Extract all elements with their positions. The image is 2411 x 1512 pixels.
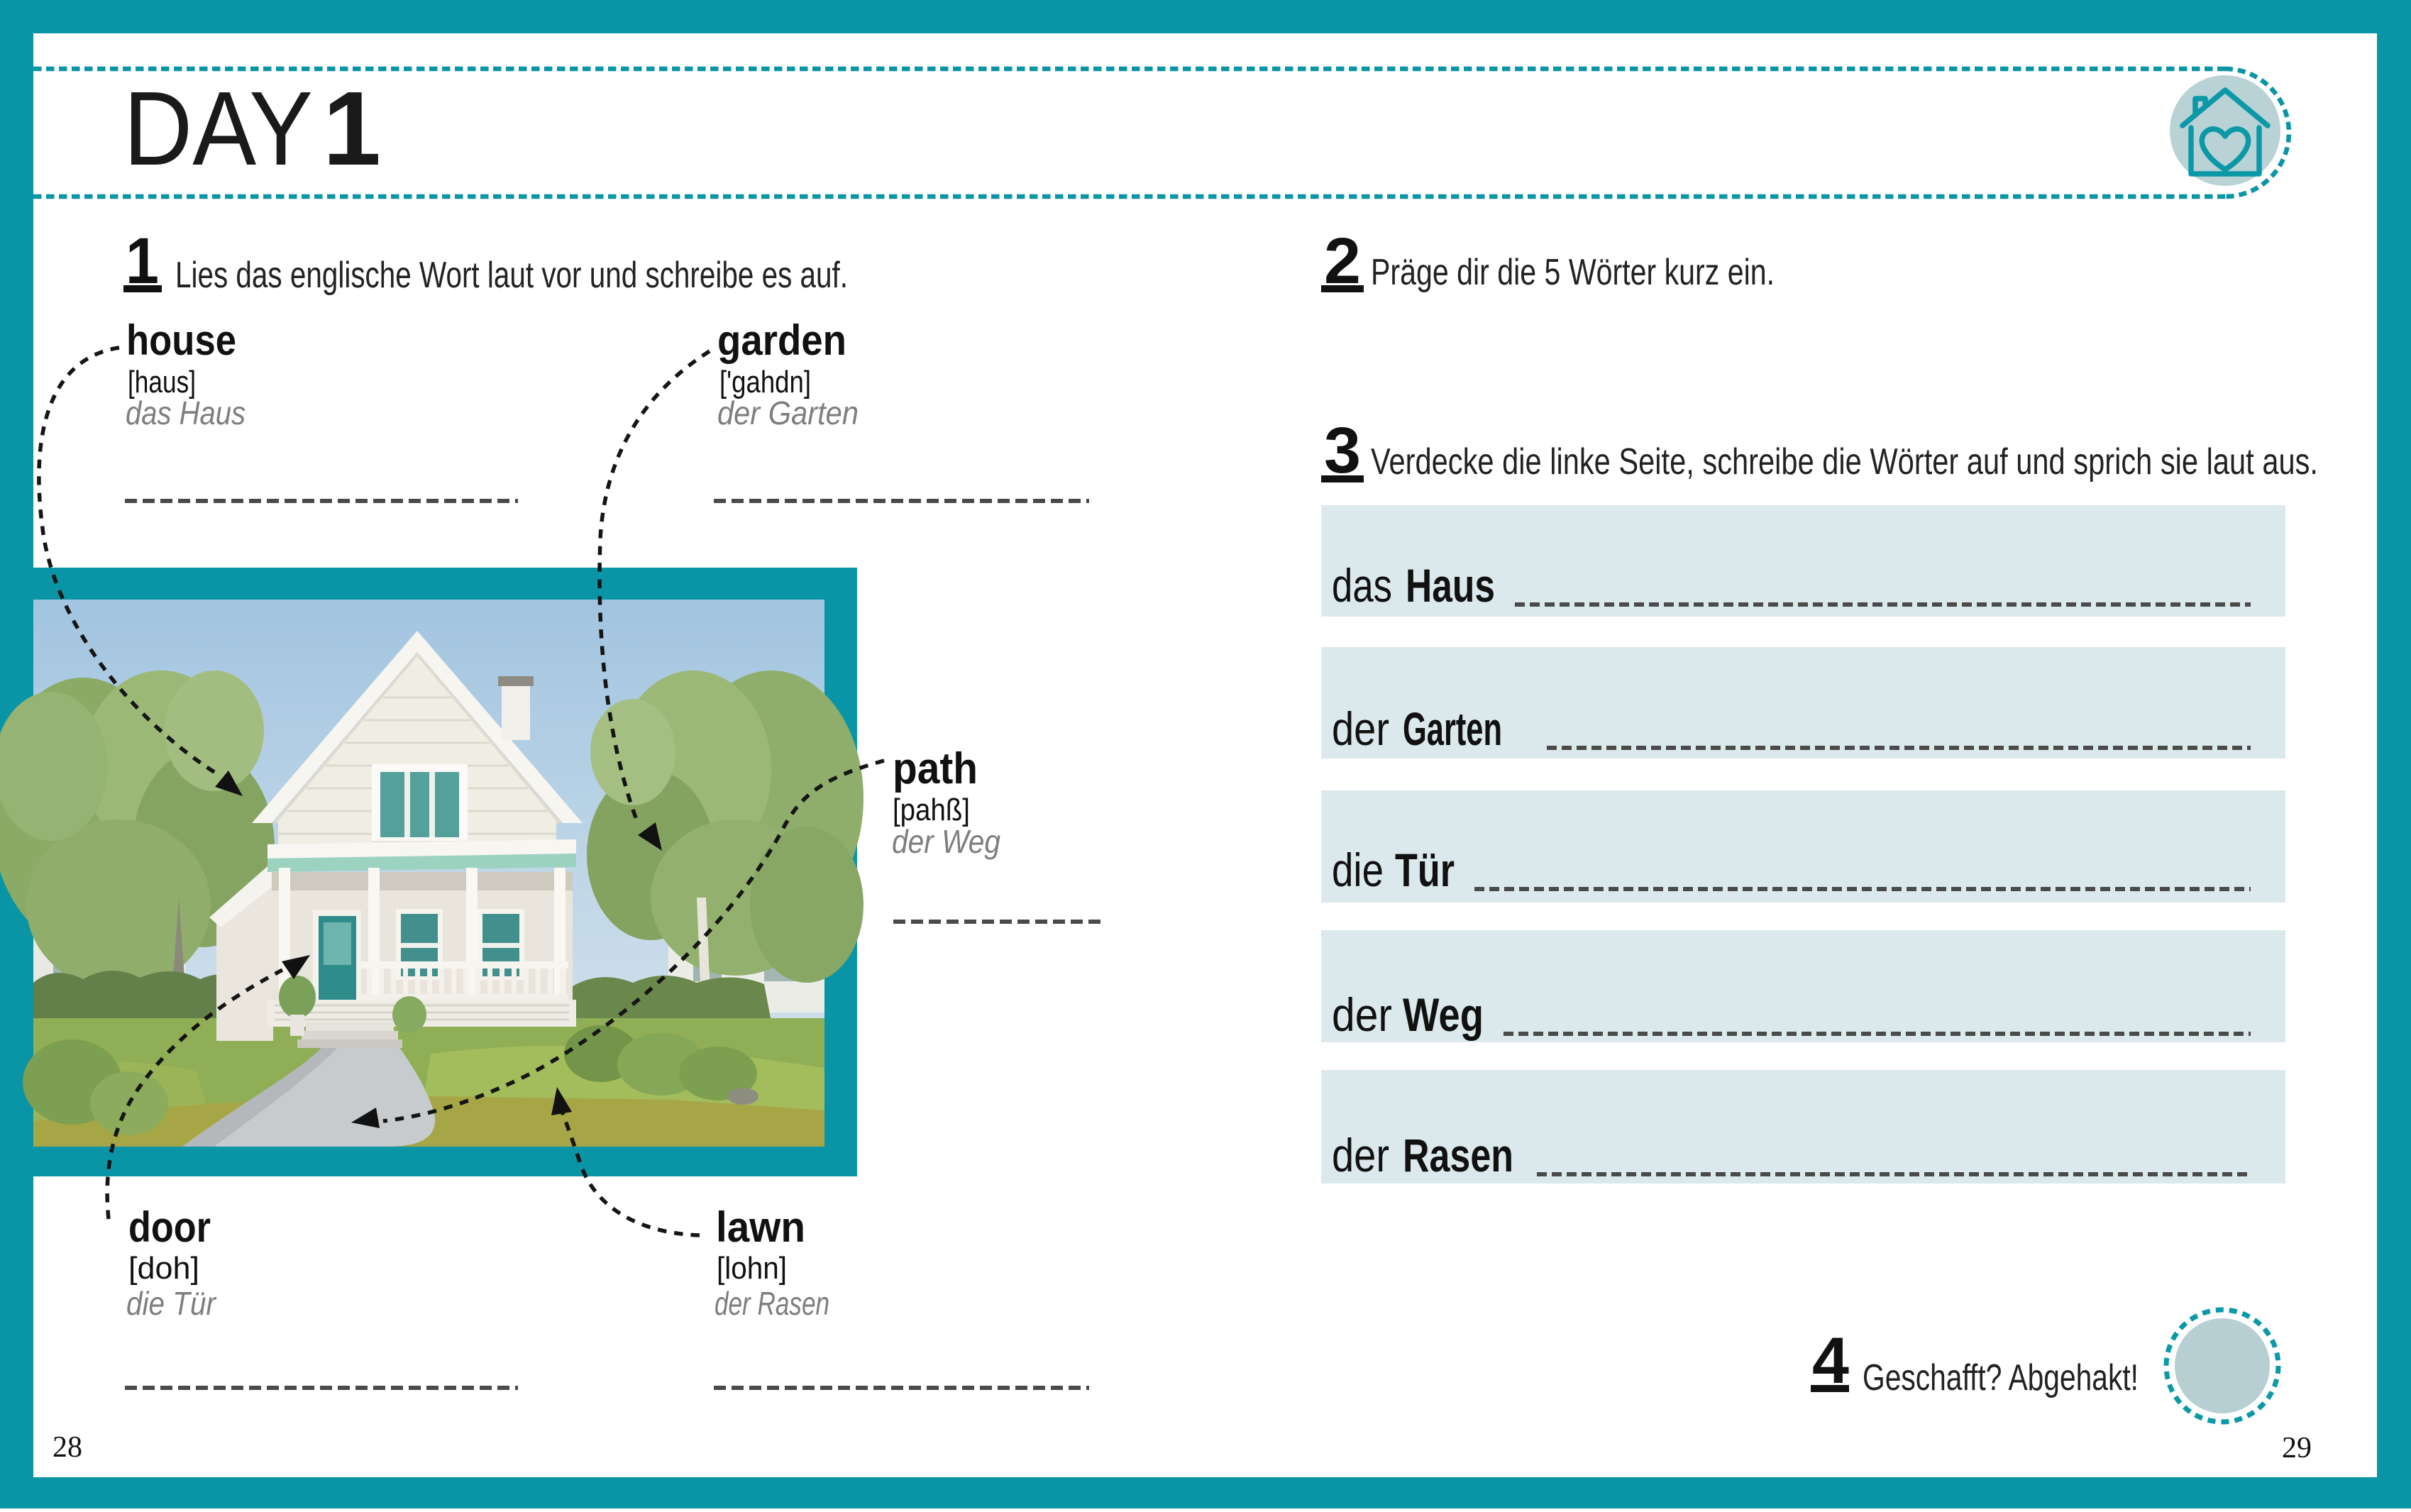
- svg-text:garden: garden: [717, 316, 846, 364]
- svg-text:28: 28: [53, 1431, 82, 1464]
- svg-text:die: die: [1332, 844, 1384, 896]
- svg-text:der: der: [1332, 702, 1389, 755]
- svg-text:Lies das englische Wort laut v: Lies das englische Wort laut vor und sch…: [175, 255, 848, 296]
- svg-text:der: der: [1332, 1129, 1389, 1181]
- svg-text:Verdecke die linke Seite, schr: Verdecke die linke Seite, schreibe die W…: [1371, 441, 2318, 482]
- svg-text:die Tür: die Tür: [126, 1285, 216, 1322]
- svg-text:Geschafft? Abgehakt!: Geschafft? Abgehakt!: [1863, 1357, 2139, 1398]
- svg-text:[pahß]: [pahß]: [893, 793, 970, 827]
- svg-text:door: door: [128, 1203, 211, 1251]
- svg-text:Tür: Tür: [1395, 844, 1455, 896]
- svg-text:Präge dir die 5 Wörter kurz ei: Präge dir die 5 Wörter kurz ein.: [1371, 252, 1775, 293]
- svg-text:der Weg: der Weg: [892, 823, 1000, 860]
- svg-text:der Garten: der Garten: [717, 394, 859, 431]
- svg-text:house: house: [126, 316, 236, 364]
- svg-text:Rasen: Rasen: [1403, 1129, 1513, 1181]
- svg-text:[lohn]: [lohn]: [717, 1251, 787, 1286]
- svg-text:der Rasen: der Rasen: [715, 1285, 829, 1322]
- svg-text:das Haus: das Haus: [126, 394, 245, 431]
- svg-text:Weg: Weg: [1403, 988, 1484, 1041]
- svg-text:DAY: DAY: [123, 70, 313, 187]
- svg-text:[doh]: [doh]: [128, 1251, 199, 1286]
- svg-text:das: das: [1332, 559, 1392, 612]
- svg-text:path: path: [893, 744, 978, 793]
- svg-text:1: 1: [323, 70, 381, 187]
- svg-text:Garten: Garten: [1403, 702, 1502, 755]
- svg-text:lawn: lawn: [716, 1203, 805, 1251]
- svg-text:der: der: [1332, 988, 1392, 1041]
- svg-text:29: 29: [2282, 1432, 2312, 1464]
- svg-text:Haus: Haus: [1406, 559, 1495, 612]
